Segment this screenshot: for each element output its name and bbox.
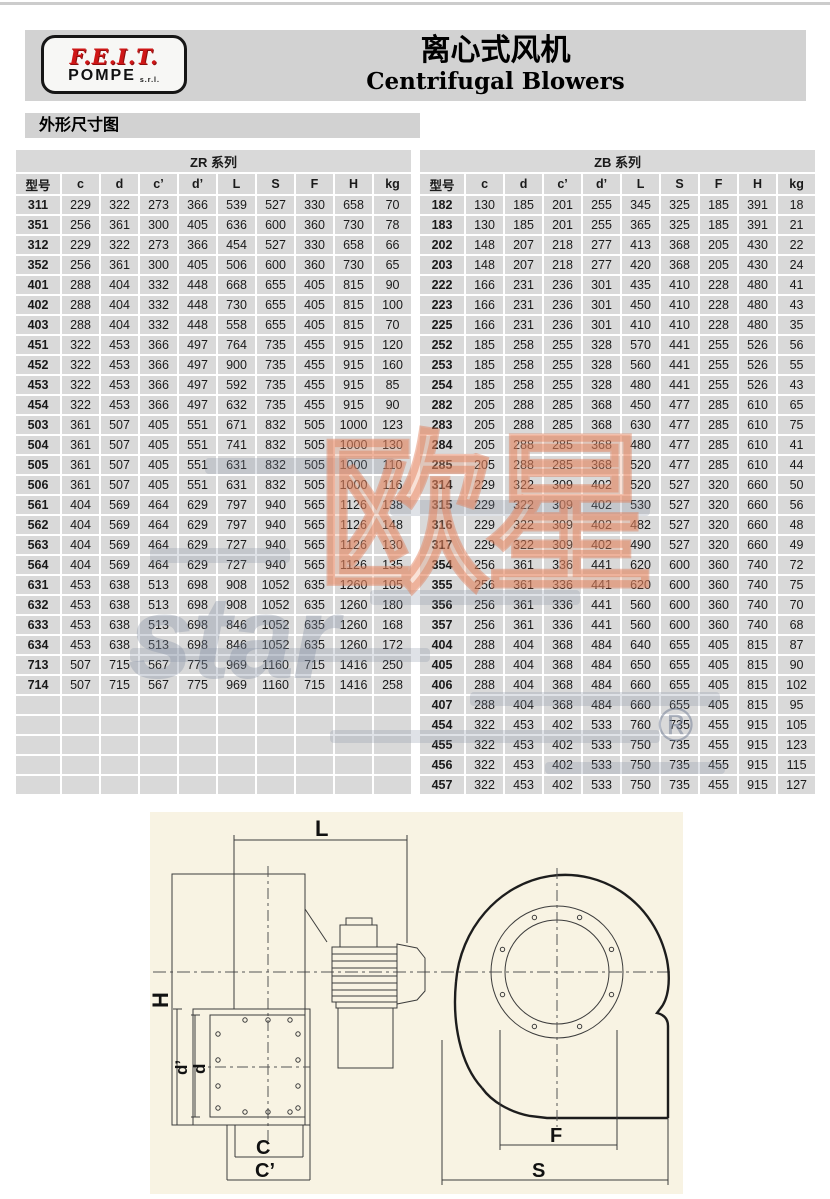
value-cell: 490 (622, 536, 659, 554)
table-row: 406288404368484660655405815102 (420, 676, 815, 694)
value-cell: 228 (700, 296, 737, 314)
model-cell (16, 736, 60, 754)
value-cell: 322 (62, 376, 99, 394)
value-cell (335, 756, 372, 774)
value-cell: 455 (296, 376, 333, 394)
value-cell: 655 (257, 296, 294, 314)
value-cell: 410 (622, 316, 659, 334)
model-cell: 714 (16, 676, 60, 694)
model-cell: 456 (420, 756, 464, 774)
value-cell: 1000 (335, 416, 372, 434)
model-cell: 285 (420, 456, 464, 474)
table-row: 71350771556777596911607151416250 (16, 656, 411, 674)
value-cell: 70 (374, 196, 411, 214)
value-cell: 320 (700, 536, 737, 554)
value-cell: 505 (296, 436, 333, 454)
value-cell: 201 (544, 216, 581, 234)
model-cell: 455 (420, 736, 464, 754)
value-cell: 507 (62, 656, 99, 674)
value-cell: 727 (218, 556, 255, 574)
column-header: H (739, 174, 776, 194)
value-cell: 404 (505, 696, 542, 714)
value-cell: 520 (622, 476, 659, 494)
column-header: d’ (179, 174, 216, 194)
value-cell: 255 (544, 356, 581, 374)
value-cell: 655 (661, 676, 698, 694)
value-cell: 328 (583, 336, 620, 354)
value-cell: 405 (700, 656, 737, 674)
value-cell: 322 (101, 236, 138, 254)
value-cell: 130 (466, 196, 503, 214)
value-cell: 148 (374, 516, 411, 534)
value-cell: 455 (700, 716, 737, 734)
value-cell: 404 (101, 316, 138, 334)
dim-label-S: S (532, 1160, 545, 1182)
value-cell: 402 (583, 516, 620, 534)
value-cell: 309 (544, 516, 581, 534)
value-cell (179, 776, 216, 794)
value-cell: 322 (466, 776, 503, 794)
value-cell: 797 (218, 496, 255, 514)
value-cell: 332 (140, 296, 177, 314)
value-cell: 368 (583, 436, 620, 454)
logo-sub-text: POMPE (68, 68, 136, 84)
value-cell: 533 (583, 756, 620, 774)
value-cell: 507 (101, 456, 138, 474)
value-cell: 655 (661, 696, 698, 714)
table-row: 457322453402533750735455915127 (420, 776, 815, 794)
column-header: F (296, 174, 333, 194)
value-cell: 815 (739, 676, 776, 694)
value-cell: 255 (583, 196, 620, 214)
value-cell: 940 (257, 496, 294, 514)
value-cell: 322 (62, 336, 99, 354)
value-cell: 410 (661, 296, 698, 314)
value-cell: 453 (505, 716, 542, 734)
value-cell: 288 (505, 396, 542, 414)
value-cell: 256 (62, 216, 99, 234)
table-row: 31522932230940253052732066056 (420, 496, 815, 514)
value-cell: 255 (583, 216, 620, 234)
table-row: 35525636133644162060036074075 (420, 576, 815, 594)
value-cell: 735 (257, 356, 294, 374)
dim-label-L: L (315, 816, 328, 841)
value-cell: 513 (140, 636, 177, 654)
model-cell: 253 (420, 356, 464, 374)
value-cell: 660 (622, 696, 659, 714)
value-cell: 640 (622, 636, 659, 654)
value-cell: 130 (466, 216, 503, 234)
value-cell (374, 756, 411, 774)
value-cell: 507 (62, 676, 99, 694)
value-cell: 405 (140, 476, 177, 494)
value-cell: 328 (583, 376, 620, 394)
value-cell: 775 (179, 676, 216, 694)
value-cell: 402 (544, 736, 581, 754)
value-cell: 207 (505, 236, 542, 254)
value-cell: 660 (739, 536, 776, 554)
value-cell: 185 (700, 216, 737, 234)
table-row: 454322453402533760735455915105 (420, 716, 815, 734)
value-cell: 285 (544, 396, 581, 414)
value-cell: 527 (257, 236, 294, 254)
value-cell: 405 (140, 436, 177, 454)
value-cell (296, 736, 333, 754)
value-cell: 185 (505, 196, 542, 214)
value-cell: 551 (179, 476, 216, 494)
value-cell: 255 (544, 376, 581, 394)
value-cell: 600 (661, 576, 698, 594)
value-cell: 328 (583, 356, 620, 374)
value-cell: 277 (583, 256, 620, 274)
value-cell: 201 (544, 196, 581, 214)
model-cell: 183 (420, 216, 464, 234)
value-cell: 402 (583, 476, 620, 494)
table-row: 5063615074055516318325051000116 (16, 476, 411, 494)
value-cell: 135 (374, 556, 411, 574)
value-cell: 610 (739, 416, 776, 434)
value-cell: 361 (62, 476, 99, 494)
value-cell: 915 (335, 336, 372, 354)
table-row: 5043615074055517418325051000130 (16, 436, 411, 454)
table-row: 25318525825532856044125552655 (420, 356, 815, 374)
value-cell: 735 (661, 716, 698, 734)
table-row: 20214820721827741336820543022 (420, 236, 815, 254)
value-cell: 172 (374, 636, 411, 654)
value-cell: 325 (661, 216, 698, 234)
value-cell: 231 (505, 276, 542, 294)
value-cell: 610 (739, 436, 776, 454)
value-cell: 497 (179, 376, 216, 394)
value-cell: 285 (544, 416, 581, 434)
value-cell: 655 (661, 656, 698, 674)
value-cell: 638 (101, 636, 138, 654)
value-cell: 115 (778, 756, 815, 774)
value-cell: 533 (583, 736, 620, 754)
value-cell: 130 (374, 536, 411, 554)
value-cell (179, 756, 216, 774)
value-cell: 453 (101, 336, 138, 354)
value-cell: 255 (700, 336, 737, 354)
value-cell: 464 (140, 556, 177, 574)
zb-header-row: 型号 c d c’ d’ L S F H kg (420, 174, 815, 194)
value-cell (218, 756, 255, 774)
model-cell: 453 (16, 376, 60, 394)
value-cell: 229 (466, 516, 503, 534)
value-cell: 453 (505, 756, 542, 774)
value-cell: 229 (466, 536, 503, 554)
value-cell: 256 (466, 596, 503, 614)
value-cell: 660 (739, 516, 776, 534)
value-cell: 205 (466, 416, 503, 434)
value-cell: 250 (374, 656, 411, 674)
model-cell: 355 (420, 576, 464, 594)
value-cell: 450 (622, 396, 659, 414)
value-cell: 750 (622, 736, 659, 754)
value-cell: 846 (218, 636, 255, 654)
table-row: 31122932227336653952733065870 (16, 196, 411, 214)
table-row: 40328840433244855865540581570 (16, 316, 411, 334)
value-cell: 138 (374, 496, 411, 514)
value-cell: 610 (739, 396, 776, 414)
value-cell: 480 (739, 276, 776, 294)
value-cell: 453 (62, 576, 99, 594)
value-cell: 258 (374, 676, 411, 694)
value-cell: 95 (778, 696, 815, 714)
page-top-rule (0, 2, 830, 5)
value-cell: 49 (778, 536, 815, 554)
value-cell: 448 (179, 316, 216, 334)
value-cell: 361 (101, 216, 138, 234)
value-cell: 480 (739, 316, 776, 334)
value-cell: 560 (622, 356, 659, 374)
model-cell: 252 (420, 336, 464, 354)
value-cell: 24 (778, 256, 815, 274)
value-cell: 180 (374, 596, 411, 614)
value-cell: 815 (739, 656, 776, 674)
value-cell: 520 (622, 456, 659, 474)
value-cell: 18 (778, 196, 815, 214)
value-cell: 480 (739, 296, 776, 314)
column-header: kg (778, 174, 815, 194)
value-cell: 600 (661, 616, 698, 634)
value-cell: 288 (505, 456, 542, 474)
value-cell: 229 (466, 476, 503, 494)
model-cell: 505 (16, 456, 60, 474)
model-cell: 351 (16, 216, 60, 234)
value-cell: 735 (661, 736, 698, 754)
value-cell: 1416 (335, 656, 372, 674)
value-cell: 56 (778, 336, 815, 354)
value-cell (374, 776, 411, 794)
column-header: L (218, 174, 255, 194)
dimension-tables: ZR 系列 型号 c d c’ d’ L S F H kg 3112293222… (14, 148, 816, 796)
value-cell: 715 (296, 656, 333, 674)
value-cell: 453 (101, 376, 138, 394)
value-cell: 730 (335, 256, 372, 274)
value-cell: 505 (296, 456, 333, 474)
column-header: c (62, 174, 99, 194)
value-cell: 1052 (257, 636, 294, 654)
value-cell: 404 (62, 556, 99, 574)
value-cell: 797 (218, 516, 255, 534)
value-cell: 110 (374, 456, 411, 474)
table-row: 455322453402533750735455915123 (420, 736, 815, 754)
value-cell: 361 (62, 456, 99, 474)
value-cell: 908 (218, 576, 255, 594)
value-cell: 750 (622, 756, 659, 774)
value-cell: 915 (335, 356, 372, 374)
value-cell: 231 (505, 296, 542, 314)
value-cell (179, 716, 216, 734)
value-cell: 1052 (257, 596, 294, 614)
value-cell: 361 (62, 436, 99, 454)
value-cell: 1052 (257, 576, 294, 594)
page-title: 离心式风机 (225, 34, 766, 68)
value-cell: 551 (179, 416, 216, 434)
value-cell: 288 (466, 636, 503, 654)
value-cell (296, 776, 333, 794)
value-cell: 229 (62, 196, 99, 214)
value-cell (296, 696, 333, 714)
value-cell: 361 (62, 416, 99, 434)
value-cell: 273 (140, 236, 177, 254)
column-header: 型号 (420, 174, 464, 194)
value-cell: 322 (62, 356, 99, 374)
value-cell (140, 756, 177, 774)
value-cell: 330 (296, 236, 333, 254)
column-header: L (622, 174, 659, 194)
value-cell: 635 (296, 636, 333, 654)
value-cell: 365 (622, 216, 659, 234)
value-cell: 727 (218, 536, 255, 554)
value-cell: 477 (661, 456, 698, 474)
column-header: 型号 (16, 174, 60, 194)
value-cell: 404 (101, 296, 138, 314)
model-cell: 403 (16, 316, 60, 334)
value-cell: 480 (622, 376, 659, 394)
value-cell: 43 (778, 296, 815, 314)
value-cell: 505 (296, 416, 333, 434)
value-cell: 660 (739, 496, 776, 514)
model-cell: 405 (420, 656, 464, 674)
value-cell: 404 (62, 496, 99, 514)
value-cell: 527 (661, 516, 698, 534)
value-cell: 441 (583, 576, 620, 594)
value-cell (257, 716, 294, 734)
table-row: 5053615074055516318325051000110 (16, 456, 411, 474)
value-cell: 655 (257, 276, 294, 294)
value-cell: 258 (505, 336, 542, 354)
value-cell: 569 (101, 536, 138, 554)
value-cell: 413 (622, 236, 659, 254)
value-cell: 43 (778, 376, 815, 394)
value-cell: 658 (335, 196, 372, 214)
value-cell: 105 (778, 716, 815, 734)
value-cell: 915 (335, 396, 372, 414)
value-cell: 507 (101, 436, 138, 454)
value-cell: 256 (466, 576, 503, 594)
value-cell: 940 (257, 536, 294, 554)
value-cell: 205 (466, 456, 503, 474)
value-cell: 698 (179, 616, 216, 634)
value-cell: 148 (466, 256, 503, 274)
value-cell (257, 736, 294, 754)
value-cell: 620 (622, 576, 659, 594)
value-cell: 567 (140, 656, 177, 674)
value-cell: 368 (544, 656, 581, 674)
value-cell: 258 (505, 376, 542, 394)
value-cell: 325 (661, 196, 698, 214)
value-cell: 636 (218, 216, 255, 234)
section-title: 外形尺寸图 (25, 113, 420, 138)
value-cell: 336 (544, 596, 581, 614)
model-cell: 634 (16, 636, 60, 654)
value-cell (62, 696, 99, 714)
value-cell: 915 (335, 376, 372, 394)
value-cell: 940 (257, 516, 294, 534)
table-row: 63345363851369884610526351260168 (16, 616, 411, 634)
value-cell: 1126 (335, 536, 372, 554)
value-cell: 430 (739, 256, 776, 274)
value-cell: 1260 (335, 636, 372, 654)
value-cell: 1160 (257, 656, 294, 674)
value-cell: 464 (140, 516, 177, 534)
value-cell: 322 (505, 476, 542, 494)
value-cell: 70 (374, 316, 411, 334)
value-cell: 120 (374, 336, 411, 354)
model-cell: 561 (16, 496, 60, 514)
value-cell (101, 696, 138, 714)
value-cell: 630 (622, 416, 659, 434)
value-cell: 655 (661, 636, 698, 654)
value-cell: 368 (583, 456, 620, 474)
value-cell: 301 (583, 296, 620, 314)
table-row: 35225636130040550660036073065 (16, 256, 411, 274)
value-cell: 366 (140, 376, 177, 394)
column-header: S (661, 174, 698, 194)
value-cell: 969 (218, 656, 255, 674)
value-cell (257, 756, 294, 774)
value-cell: 455 (700, 756, 737, 774)
value-cell: 55 (778, 356, 815, 374)
value-cell: 482 (622, 516, 659, 534)
value-cell: 166 (466, 276, 503, 294)
value-cell: 332 (140, 276, 177, 294)
value-cell: 402 (544, 756, 581, 774)
value-cell (62, 776, 99, 794)
dimension-drawing: L H d’ d C C’ F S (150, 812, 683, 1194)
table-row: 28220528828536845047728561065 (420, 396, 815, 414)
model-cell: 202 (420, 236, 464, 254)
value-cell: 592 (218, 376, 255, 394)
value-cell (257, 776, 294, 794)
value-cell: 309 (544, 536, 581, 554)
value-cell: 455 (700, 736, 737, 754)
value-cell: 405 (700, 696, 737, 714)
value-cell: 832 (257, 456, 294, 474)
logo-suffix-text: s.r.l. (140, 77, 160, 84)
column-header: F (700, 174, 737, 194)
table-row: 5644045694646297279405651126135 (16, 556, 411, 574)
zr-series-title: ZR 系列 (16, 150, 411, 172)
value-cell: 368 (544, 696, 581, 714)
value-cell: 185 (700, 196, 737, 214)
value-cell: 815 (335, 296, 372, 314)
value-cell (62, 756, 99, 774)
value-cell: 635 (296, 616, 333, 634)
table-row: 451322453366497764735455915120 (16, 336, 411, 354)
table-row: 28420528828536848047728561041 (420, 436, 815, 454)
value-cell: 565 (296, 556, 333, 574)
value-cell: 569 (101, 516, 138, 534)
value-cell: 300 (140, 216, 177, 234)
value-cell: 1126 (335, 496, 372, 514)
value-cell: 255 (700, 356, 737, 374)
model-cell: 402 (16, 296, 60, 314)
zb-series-title: ZB 系列 (420, 150, 815, 172)
value-cell: 477 (661, 416, 698, 434)
model-cell: 356 (420, 596, 464, 614)
model-cell: 312 (16, 236, 60, 254)
dim-label-C: C (256, 1137, 270, 1159)
value-cell: 629 (179, 516, 216, 534)
model-cell: 254 (420, 376, 464, 394)
value-cell (62, 736, 99, 754)
value-cell: 750 (622, 776, 659, 794)
value-cell: 56 (778, 496, 815, 514)
value-cell: 320 (700, 496, 737, 514)
